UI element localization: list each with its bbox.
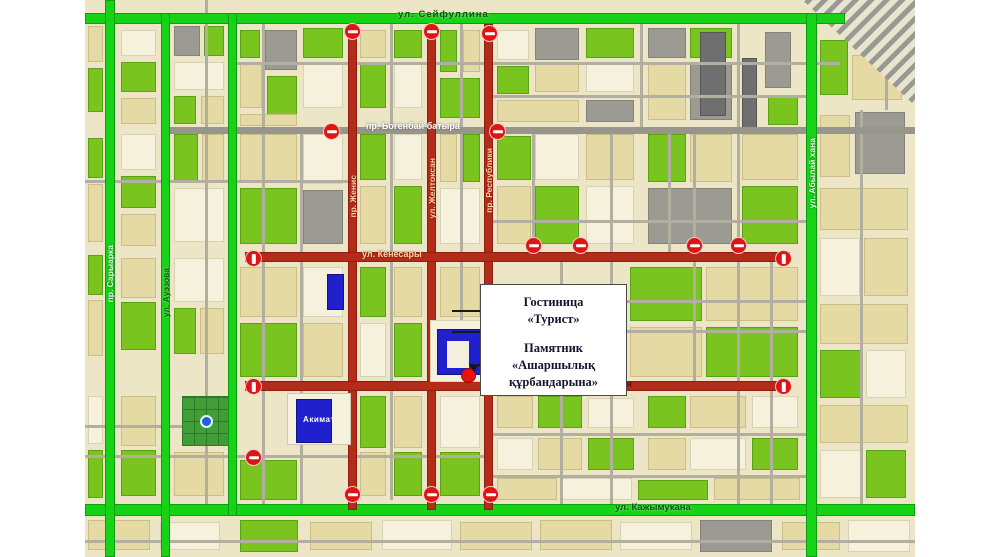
map-block — [562, 478, 632, 500]
no-entry-icon — [423, 486, 440, 503]
minor-street — [230, 62, 840, 65]
map-block — [360, 323, 386, 377]
minor-street — [770, 253, 773, 505]
map-block — [360, 186, 386, 244]
map-block — [240, 64, 262, 108]
map-block — [648, 28, 686, 58]
map-block — [497, 30, 529, 60]
callout-monument-label: Памятник «Ашаршылық құрбандарына» — [481, 340, 626, 391]
map-block — [648, 188, 732, 244]
no-entry-icon — [245, 378, 262, 395]
map-block — [174, 26, 200, 56]
map-block — [497, 100, 579, 122]
map-block — [497, 186, 531, 244]
akimat-label: Акимат — [289, 415, 349, 424]
map-block — [497, 438, 533, 470]
street-label-top: ул. Сейфуллина — [398, 9, 489, 20]
map-block — [240, 134, 297, 182]
street-label-zheltoksan: ул. Желтоксан — [427, 158, 437, 219]
street-right-green — [806, 13, 817, 557]
map-block — [121, 98, 156, 124]
map-block — [586, 64, 634, 92]
map-block — [638, 480, 708, 500]
minor-street — [492, 433, 806, 436]
street-label-kazhymukan: ул. Кажымукана — [615, 502, 691, 513]
map-block — [768, 95, 798, 125]
map-block — [630, 267, 702, 321]
map-block — [460, 522, 532, 550]
no-entry-icon — [775, 250, 792, 267]
map-block — [382, 520, 452, 550]
map-block — [240, 114, 297, 126]
no-entry-icon — [323, 123, 340, 140]
map-block — [630, 327, 702, 377]
map-block — [714, 478, 800, 500]
callout-hotel-label: Гостиница «Турист» — [481, 294, 626, 328]
minor-street — [640, 22, 643, 130]
street-label-auezov: ул. Ауэзова — [161, 268, 171, 317]
minor-street — [668, 131, 671, 253]
minor-street — [492, 475, 806, 478]
map-block — [700, 32, 726, 116]
no-entry-icon — [686, 237, 703, 254]
map-block — [535, 64, 579, 92]
no-entry-icon — [482, 486, 499, 503]
minor-street — [300, 130, 303, 505]
map-block — [535, 186, 579, 244]
map-block — [240, 323, 297, 377]
map-block — [303, 134, 343, 184]
map-block — [497, 136, 531, 180]
map-block — [121, 214, 156, 246]
map-block — [303, 64, 343, 108]
map-block — [174, 96, 196, 124]
no-entry-icon — [245, 250, 262, 267]
map-block — [820, 405, 908, 443]
map-block — [820, 40, 848, 95]
street-label-saryarka: пр. Сарыарка — [105, 245, 115, 302]
minor-street — [85, 455, 484, 458]
minor-street — [492, 95, 806, 98]
map-block — [240, 188, 297, 244]
map-block — [820, 450, 862, 498]
no-entry-icon — [775, 378, 792, 395]
street-label-respubliki: пр. Республики — [484, 148, 494, 213]
street-label-bogenbai: пр. Богенбай батыра — [366, 121, 460, 131]
minor-street — [85, 540, 915, 543]
map-block — [820, 188, 908, 230]
street-respubliki-closed — [484, 24, 493, 510]
map-block — [360, 64, 386, 108]
map-block — [765, 32, 791, 88]
map-block — [88, 520, 150, 550]
map-block — [121, 62, 156, 92]
map-block — [121, 302, 156, 350]
map-block — [586, 100, 634, 122]
minor-street — [532, 131, 535, 253]
map-block — [463, 30, 480, 72]
map-block — [463, 134, 480, 182]
map-block — [648, 438, 686, 470]
city-map: Акимат ул. Сейфуллина пр. Богенбай батыр… — [0, 0, 1000, 557]
no-entry-icon — [489, 123, 506, 140]
map-block — [394, 64, 422, 108]
map-block — [752, 438, 798, 470]
minor-street — [262, 22, 265, 505]
map-block — [706, 267, 798, 321]
map-block — [820, 350, 862, 398]
no-entry-icon — [423, 23, 440, 40]
map-block — [440, 30, 457, 72]
map-block — [700, 520, 772, 552]
map-block — [360, 134, 386, 180]
map-block — [88, 68, 103, 112]
no-entry-icon — [572, 237, 589, 254]
map-block — [394, 30, 422, 58]
street-third-green — [228, 13, 237, 516]
map-block — [360, 267, 386, 317]
map-block — [174, 308, 196, 354]
street-zheltoksan-closed — [427, 24, 436, 510]
no-entry-icon — [730, 237, 747, 254]
map-block — [540, 520, 612, 550]
map-block — [394, 186, 422, 244]
map-block — [303, 28, 343, 58]
map-block — [648, 134, 686, 182]
map-block — [303, 190, 343, 244]
map-block — [360, 396, 386, 448]
map-block — [394, 134, 422, 180]
map-block — [742, 134, 798, 180]
street-label-kenesary: ул. Кенесары — [362, 249, 422, 259]
street-kenesary-closed — [245, 252, 790, 262]
map-block — [200, 308, 224, 354]
callout-box: Гостиница «Турист» Памятник «Ашаршылық қ… — [480, 284, 627, 396]
map-block — [88, 138, 103, 178]
map-block — [240, 520, 298, 552]
map-block — [121, 396, 156, 446]
no-entry-icon — [525, 237, 542, 254]
map-block — [174, 452, 224, 496]
map-block — [690, 134, 732, 182]
no-entry-icon — [344, 23, 361, 40]
minor-street — [390, 24, 393, 500]
map-block — [121, 134, 156, 170]
map-block — [394, 267, 422, 317]
map-block — [440, 396, 480, 448]
minor-street — [85, 180, 348, 183]
street-label-zhenis: пр. Женис — [348, 175, 358, 218]
map-block — [88, 26, 103, 62]
map-block — [360, 30, 386, 58]
map-block — [310, 522, 372, 550]
minor-street — [618, 300, 806, 303]
map-block — [752, 396, 798, 428]
map-block — [864, 238, 908, 296]
map-block — [174, 188, 224, 242]
street-label-abylaikhan: ул. Абылай хана — [807, 138, 817, 208]
map-block — [742, 186, 798, 244]
minor-street — [618, 330, 806, 333]
map-block — [121, 258, 156, 298]
map-block — [174, 134, 198, 182]
map-block — [394, 323, 422, 377]
map-block — [706, 327, 798, 377]
map-block — [866, 350, 906, 398]
map-block — [497, 396, 533, 428]
map-block — [174, 62, 224, 90]
map-block — [88, 396, 103, 444]
no-entry-icon — [245, 449, 262, 466]
map-block — [360, 452, 386, 496]
map-block — [394, 396, 422, 448]
map-block — [303, 323, 343, 377]
fountain-marker — [200, 415, 213, 428]
map-block — [866, 450, 906, 498]
map-block — [88, 255, 103, 295]
map-block — [240, 460, 297, 500]
minor-street — [492, 220, 806, 223]
map-block — [535, 28, 579, 60]
map-block — [174, 258, 224, 302]
map-block — [648, 396, 686, 428]
map-block — [820, 304, 908, 344]
map-block — [440, 452, 480, 496]
map-block — [121, 30, 156, 56]
street-bogenbai — [161, 127, 915, 134]
map-block — [497, 66, 529, 94]
street-bottom-green — [85, 504, 915, 516]
minor-street — [860, 110, 863, 505]
hotel-courtyard — [447, 341, 469, 368]
map-block — [497, 478, 557, 500]
map-block — [586, 28, 634, 58]
map-block — [535, 134, 579, 180]
map-block — [88, 184, 103, 242]
map-block — [394, 452, 422, 496]
map-block — [820, 115, 850, 177]
map-block — [440, 134, 457, 182]
map-block — [240, 267, 297, 317]
blue-building — [327, 274, 344, 310]
map-block — [267, 76, 297, 116]
map-block — [848, 520, 910, 552]
map-block — [820, 238, 860, 296]
map-block — [88, 300, 103, 356]
no-entry-icon — [344, 486, 361, 503]
map-block — [648, 64, 686, 120]
no-entry-icon — [481, 25, 498, 42]
map-block — [620, 522, 692, 550]
map-block — [240, 30, 260, 58]
